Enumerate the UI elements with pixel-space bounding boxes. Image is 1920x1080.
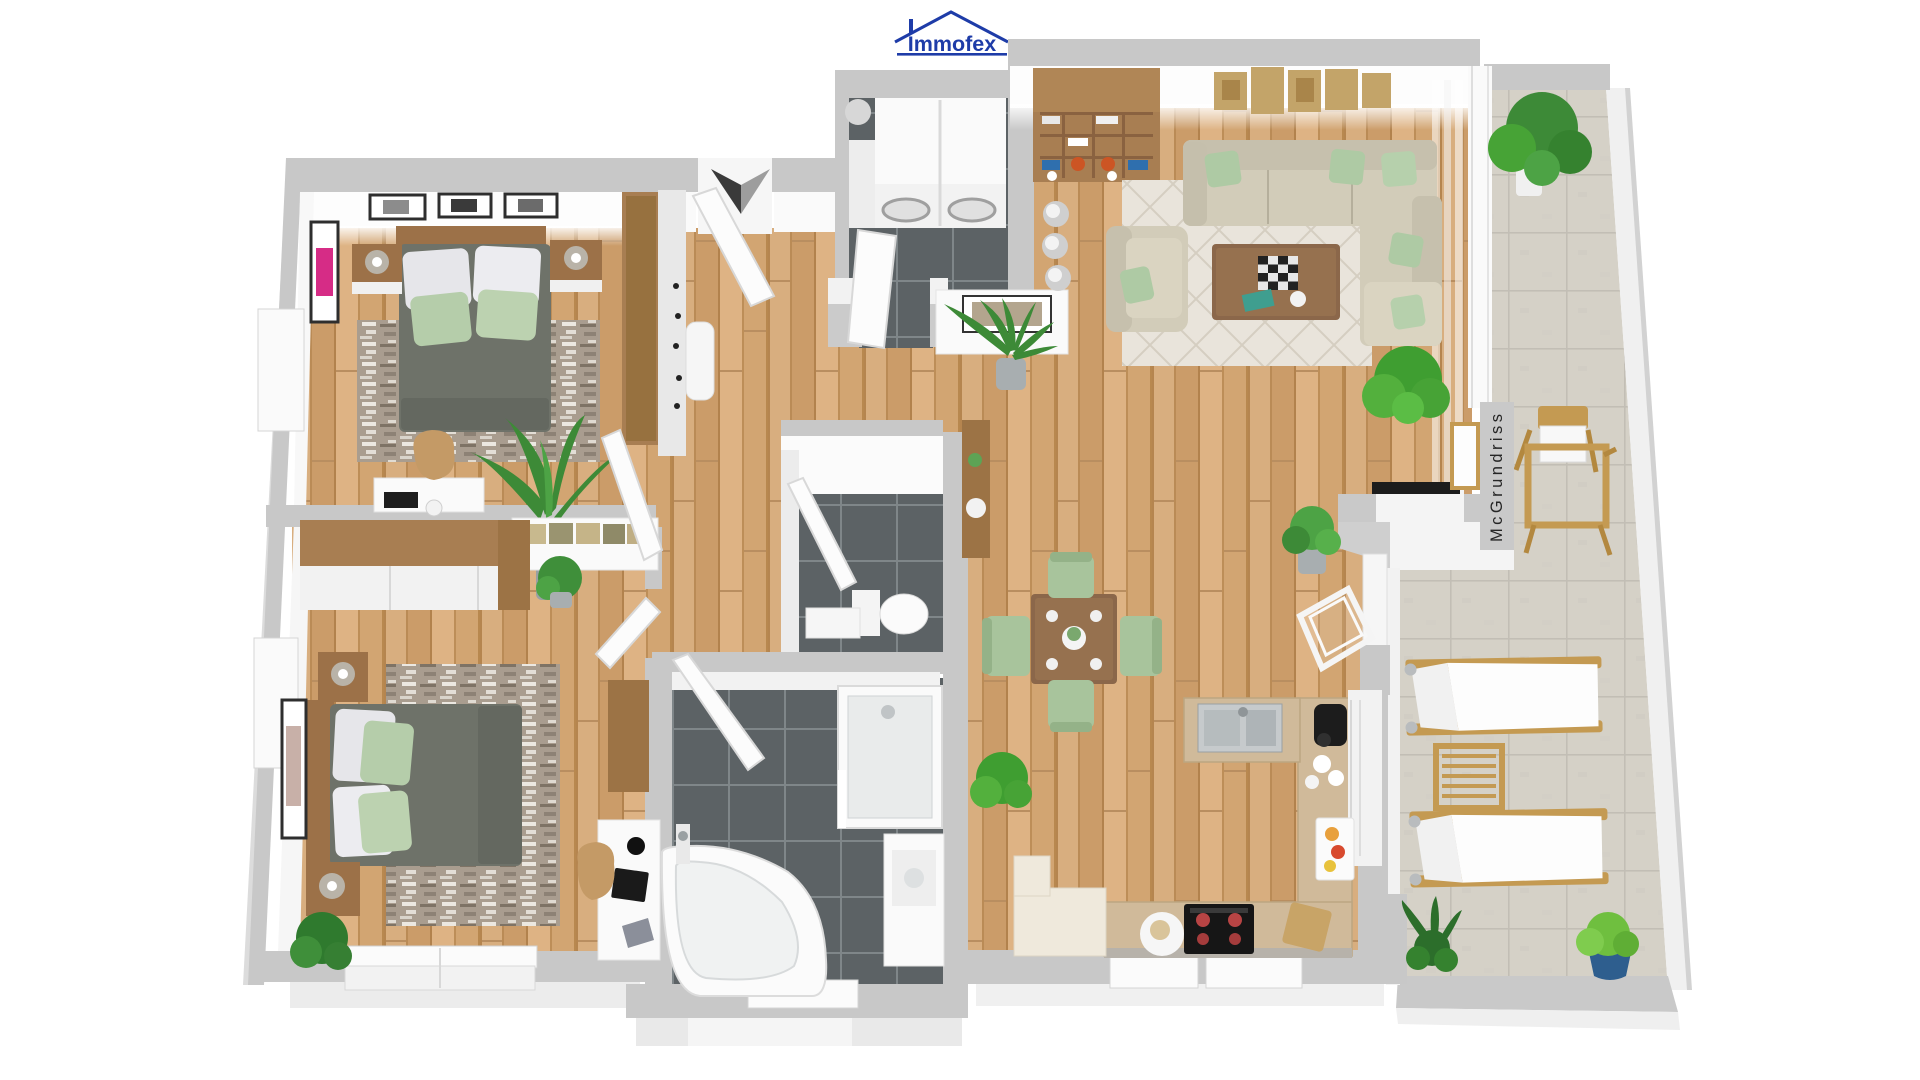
svg-text:Immofex: Immofex: [908, 32, 996, 56]
